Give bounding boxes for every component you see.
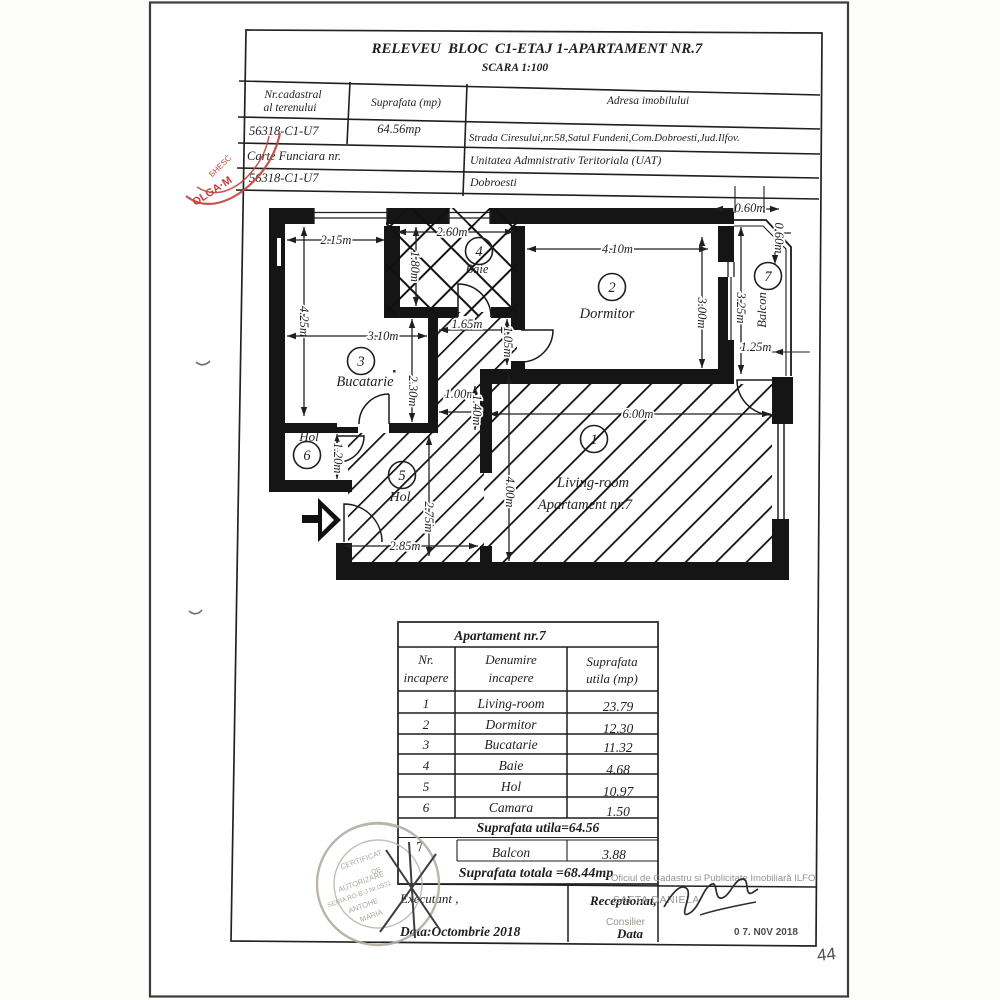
svg-text:7: 7 — [764, 269, 772, 285]
svg-text:Carte Funciara nr.: Carte Funciara nr. — [247, 149, 341, 163]
svg-text:Bucatarie: Bucatarie — [484, 737, 537, 752]
svg-text:Apartament nr.7: Apartament nr.7 — [453, 628, 547, 643]
svg-text:0.60m: 0.60m — [735, 201, 766, 215]
svg-text:SCARA 1:100: SCARA 1:100 — [482, 62, 548, 74]
svg-text:Balcon: Balcon — [755, 292, 769, 327]
svg-text:6.00m: 6.00m — [623, 407, 654, 421]
svg-text:1.80m: 1.80m — [408, 251, 422, 282]
svg-text:2.60m: 2.60m — [437, 225, 468, 239]
svg-text:Suprafata totala =68.44mp: Suprafata totala =68.44mp — [459, 866, 614, 881]
svg-text:1.25m: 1.25m — [741, 340, 772, 354]
svg-text:Living-room: Living-room — [556, 475, 629, 491]
svg-text:utila (mp): utila (mp) — [586, 671, 638, 686]
svg-text:11.32: 11.32 — [603, 740, 633, 755]
svg-text:Dormitor: Dormitor — [579, 306, 635, 322]
svg-text:2.30m: 2.30m — [406, 376, 420, 407]
svg-text:1.65m: 1.65m — [452, 317, 483, 331]
svg-text:2.75m: 2.75m — [422, 502, 436, 533]
svg-text:4.68: 4.68 — [606, 762, 630, 777]
svg-text:Baie: Baie — [466, 262, 489, 276]
svg-text:1.05m: 1.05m — [501, 327, 515, 358]
svg-text:2.85m: 2.85m — [390, 539, 421, 553]
svg-text:3: 3 — [422, 737, 430, 752]
svg-text:6: 6 — [303, 448, 311, 464]
svg-text:56318-C1-U7: 56318-C1-U7 — [249, 124, 319, 138]
svg-text:Adresa imobilului: Adresa imobilului — [606, 95, 689, 107]
svg-text:Strada Ciresului,nr.58,Satul F: Strada Ciresului,nr.58,Satul Fundeni,Com… — [469, 132, 740, 144]
svg-text:Living-room: Living-room — [477, 696, 545, 711]
svg-text:1.40m: 1.40m — [470, 395, 484, 426]
svg-text:3.10m: 3.10m — [367, 329, 399, 343]
svg-text:Hol: Hol — [500, 779, 521, 794]
svg-text:Dormitor: Dormitor — [484, 717, 537, 732]
svg-text:4.00m: 4.00m — [503, 477, 517, 508]
svg-text:0 7. N0V 2018: 0 7. N0V 2018 — [734, 927, 798, 938]
svg-text:5: 5 — [423, 779, 430, 794]
svg-text:23.79: 23.79 — [603, 699, 634, 714]
svg-text:4.25m: 4.25m — [297, 306, 311, 337]
svg-text:1.20m: 1.20m — [331, 443, 345, 474]
svg-text:incapere: incapere — [404, 670, 449, 685]
svg-text:Unitatea Admnistrativ Teritori: Unitatea Admnistrativ Teritoriala (UAT) — [470, 153, 661, 167]
svg-text:Suprafata utila=64.56: Suprafata utila=64.56 — [477, 820, 600, 835]
svg-text:1.50: 1.50 — [606, 804, 630, 819]
svg-text:3.25m: 3.25m — [734, 292, 748, 324]
svg-text:4: 4 — [475, 244, 482, 260]
svg-text:1: 1 — [590, 432, 597, 448]
svg-text:Data: Data — [616, 926, 644, 941]
svg-text:al terenului: al terenului — [264, 102, 317, 114]
svg-text:Nr.cadastral: Nr.cadastral — [263, 89, 321, 101]
svg-text:1: 1 — [423, 696, 430, 711]
svg-text:4.10m: 4.10m — [602, 242, 633, 256]
svg-text:Balcon: Balcon — [492, 845, 530, 860]
svg-text:44: 44 — [816, 944, 837, 965]
svg-text:Hol: Hol — [298, 429, 319, 444]
svg-text:Hol: Hol — [389, 490, 411, 505]
svg-text:0.60m: 0.60m — [772, 223, 786, 254]
svg-text:Suprafata: Suprafata — [586, 654, 638, 669]
svg-text:2.15m: 2.15m — [321, 233, 352, 247]
svg-text:Camara: Camara — [489, 800, 534, 815]
svg-text:Oficiul de Cadastru si Publici: Oficiul de Cadastru si Publicitate Imobi… — [611, 873, 815, 884]
svg-text:Baie: Baie — [499, 758, 524, 773]
svg-text:6: 6 — [423, 800, 430, 815]
svg-text:RELEVEU BLOC C1-ETAJ 1-APART: RELEVEU BLOC C1-ETAJ 1-APARTAMENT NR.7 — [371, 41, 703, 57]
svg-text:Dobroesti: Dobroesti — [469, 175, 517, 189]
svg-text:12.30: 12.30 — [603, 721, 634, 736]
svg-text:3.88: 3.88 — [601, 847, 626, 862]
svg-text:2: 2 — [608, 280, 615, 296]
svg-text:3.00m: 3.00m — [695, 297, 709, 329]
svg-text:Suprafata (mp): Suprafata (mp) — [371, 97, 441, 109]
svg-text:Bucatarie: Bucatarie — [336, 374, 394, 390]
svg-text:4: 4 — [423, 758, 430, 773]
svg-text:Apartament nr.7: Apartament nr.7 — [537, 497, 633, 513]
svg-text:2: 2 — [423, 717, 430, 732]
svg-text:5: 5 — [398, 468, 405, 484]
svg-text:Denumire: Denumire — [484, 652, 537, 667]
svg-text:incapere: incapere — [489, 670, 534, 685]
svg-text:Nr.: Nr. — [417, 652, 434, 667]
svg-text:10.97: 10.97 — [603, 784, 635, 799]
svg-text:3: 3 — [356, 354, 364, 370]
svg-text:64.56mp: 64.56mp — [377, 122, 420, 136]
